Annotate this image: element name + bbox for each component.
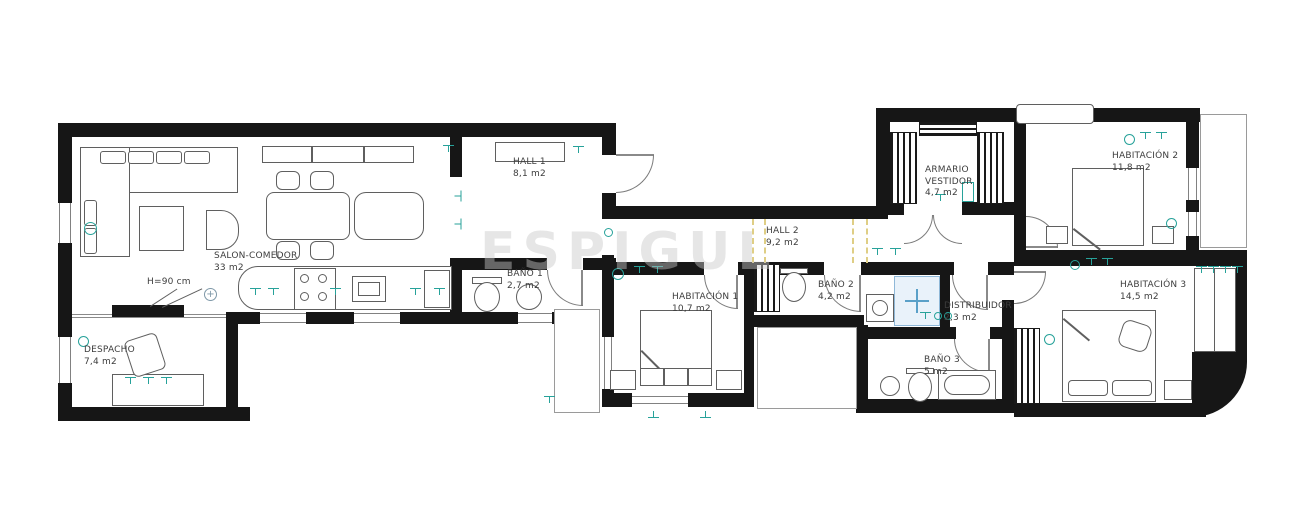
window <box>59 337 71 383</box>
room-name: ARMARIO VESTIDOR <box>925 165 983 188</box>
room-name: DISTRIBUIDOR <box>944 301 1012 313</box>
outlet-icon <box>544 396 555 404</box>
room-area: 10,7 m2 <box>672 304 738 316</box>
room-label-habitacion2: HABITACIÓN 2 11,8 m2 <box>1112 151 1178 174</box>
washbasin <box>872 300 888 316</box>
outlet-icon <box>268 288 279 296</box>
wardrobe-divider <box>1214 268 1215 352</box>
shower-drain-cross <box>916 289 918 313</box>
room-area: 2,3 m2 <box>944 313 1012 325</box>
room-area: 4,7 m2 <box>925 188 983 200</box>
wall <box>754 315 864 327</box>
wall <box>856 327 956 339</box>
wardrobe <box>1014 328 1040 404</box>
toilet <box>474 282 500 312</box>
thermostat-icon <box>1166 218 1177 229</box>
nightstand <box>716 370 742 390</box>
room-area: 11,8 m2 <box>1112 163 1178 175</box>
lintel <box>1016 104 1094 124</box>
outlet-icon <box>454 191 462 202</box>
outlet-icon <box>125 377 136 385</box>
outlet-icon <box>700 410 711 418</box>
dining-chair <box>276 171 300 190</box>
outlet-icon <box>648 410 659 418</box>
room-label-hall1: HALL 1 8,1 m2 <box>513 157 546 180</box>
outlet-icon <box>410 288 421 296</box>
door-arc <box>1014 272 1046 304</box>
outlet-icon <box>1156 132 1167 140</box>
outlet-icon <box>890 248 901 256</box>
spotlight-icon <box>934 312 942 320</box>
wall <box>58 123 72 203</box>
armchair <box>206 210 239 250</box>
wall-cabinet <box>262 146 312 163</box>
toilet <box>782 272 806 302</box>
wall <box>1002 262 1014 272</box>
wall <box>226 312 260 324</box>
radiator-icon <box>1232 266 1243 274</box>
window <box>1188 168 1197 200</box>
bed-bench <box>640 368 664 386</box>
outlet-icon <box>454 219 462 230</box>
room-name: HABITACIÓN 2 <box>1112 151 1178 163</box>
dining-chair <box>310 241 334 260</box>
outlet-icon <box>143 377 154 385</box>
stove-burner <box>300 274 309 283</box>
beam-dashed <box>866 219 868 263</box>
wall <box>1014 250 1247 266</box>
wall <box>1014 403 1206 417</box>
wall <box>602 137 616 155</box>
outlet-icon <box>1140 132 1151 140</box>
closet-door-arc <box>904 215 933 244</box>
tv-outlet-icon <box>1124 134 1135 145</box>
nightstand <box>1046 226 1068 244</box>
wall <box>58 407 250 421</box>
stove-burner <box>318 274 327 283</box>
coffee-table <box>139 206 184 251</box>
room-name: BAÑO 1 <box>507 269 543 281</box>
wall <box>1014 122 1026 250</box>
stove-burner <box>318 292 327 301</box>
room-label-habitacion1: HABITACIÓN 1 10,7 m2 <box>672 292 738 315</box>
terrace <box>1200 114 1247 248</box>
outlet-icon <box>250 288 261 296</box>
dining-chair <box>310 171 334 190</box>
sofa-cushion <box>128 151 154 164</box>
room-label-despacho: DESPACHO 7,4 m2 <box>84 345 135 368</box>
outlet-icon <box>443 145 454 153</box>
window <box>632 396 688 404</box>
bidet <box>880 376 900 396</box>
wall <box>306 312 354 324</box>
outlet-icon <box>1086 258 1097 266</box>
room-area: 33 m2 <box>214 263 297 275</box>
room-label-salon: SALON-COMEDOR 33 m2 <box>214 251 297 274</box>
wall <box>744 262 754 407</box>
radiator-icon <box>1196 266 1207 274</box>
room-name: SALON-COMEDOR <box>214 251 297 263</box>
sofa-cushion <box>100 151 126 164</box>
wall <box>1236 266 1247 358</box>
outlet-icon <box>573 146 584 154</box>
wall <box>450 137 462 177</box>
room-name: BAÑO 2 <box>818 280 854 292</box>
annotation-text: H=90 cm <box>147 277 191 289</box>
room-area: 4,2 m2 <box>818 292 854 304</box>
beam-dashed <box>852 219 854 263</box>
wall <box>876 108 890 208</box>
room-label-distribuidor: DISTRIBUIDOR 2,3 m2 <box>944 301 1012 324</box>
room-name: HABITACIÓN 1 <box>672 292 738 304</box>
closet-shelving <box>890 132 917 204</box>
radiator-icon <box>1220 266 1231 274</box>
window <box>59 203 71 243</box>
nightstand <box>1164 380 1192 400</box>
closet-door-arc <box>933 215 962 244</box>
thermostat-icon <box>84 222 97 235</box>
bed-bench <box>688 368 712 386</box>
room-name: HABITACIÓN 3 <box>1120 280 1186 292</box>
room-area: 5 m2 <box>924 367 960 379</box>
pillow <box>1112 380 1152 396</box>
room-label-hall2: HALL 2 9,2 m2 <box>766 226 799 249</box>
room-label-habitacion3: HABITACIÓN 3 14,5 m2 <box>1120 280 1186 303</box>
sofa-cushion <box>184 151 210 164</box>
wall <box>688 393 748 407</box>
sofa-cushion <box>156 151 182 164</box>
wall-cabinet <box>364 146 414 163</box>
wall <box>226 312 238 421</box>
wall <box>602 393 632 407</box>
stove-burner <box>300 292 309 301</box>
floor-plan: ESPIGUL SALON-COMEDOR 33 m2 H=90 cm DESP… <box>0 0 1300 506</box>
wall <box>1186 236 1199 250</box>
tv-outlet-icon <box>1070 260 1080 270</box>
room-label-bano2: BAÑO 2 4,2 m2 <box>818 280 854 303</box>
outlet-icon <box>1102 258 1113 266</box>
wall <box>602 206 888 219</box>
room-name: DESPACHO <box>84 345 135 357</box>
room-label-bano1: BAÑO 1 2,7 m2 <box>507 269 543 292</box>
outlet-icon <box>920 312 931 320</box>
window <box>1188 212 1197 236</box>
thermostat-icon <box>1044 334 1055 345</box>
window <box>354 313 400 323</box>
room-name: BAÑO 3 <box>924 355 960 367</box>
tv-sideboard <box>112 305 184 317</box>
room-area: 7,4 m2 <box>84 357 135 369</box>
bench <box>354 192 424 240</box>
outlet-icon <box>434 288 445 296</box>
kitchen-sink-basin <box>358 282 380 296</box>
room-area: 8,1 m2 <box>513 169 546 181</box>
counter-height-label: H=90 cm <box>147 277 191 289</box>
patio <box>554 309 600 413</box>
outlet-icon <box>161 377 172 385</box>
entrance-door-arc <box>616 155 654 193</box>
patio <box>757 327 857 409</box>
wall <box>1186 122 1199 168</box>
wall <box>1186 200 1199 212</box>
room-label-armario: ARMARIO VESTIDOR 4,7 m2 <box>925 165 983 200</box>
bed-bench <box>664 368 688 386</box>
window <box>518 313 552 323</box>
room-area: 14,5 m2 <box>1120 292 1186 304</box>
nightstand <box>610 370 636 390</box>
room-name: HALL 1 <box>513 157 546 169</box>
ceiling-light-icon <box>204 288 217 301</box>
outlet-icon <box>872 248 883 256</box>
window <box>260 313 306 323</box>
room-label-bano3: BAÑO 3 5 m2 <box>924 355 960 378</box>
wall <box>58 123 616 137</box>
wall <box>856 399 1016 413</box>
dining-table <box>266 192 350 240</box>
closet-shelving <box>919 122 977 136</box>
pillow <box>1068 380 1108 396</box>
outlet-icon <box>330 288 341 296</box>
radiator-icon <box>1208 266 1219 274</box>
room-area: 9,2 m2 <box>766 238 799 250</box>
wall <box>58 243 72 337</box>
room-area: 2,7 m2 <box>507 281 543 293</box>
wall-cabinet <box>312 146 364 163</box>
room-name: HALL 2 <box>766 226 799 238</box>
